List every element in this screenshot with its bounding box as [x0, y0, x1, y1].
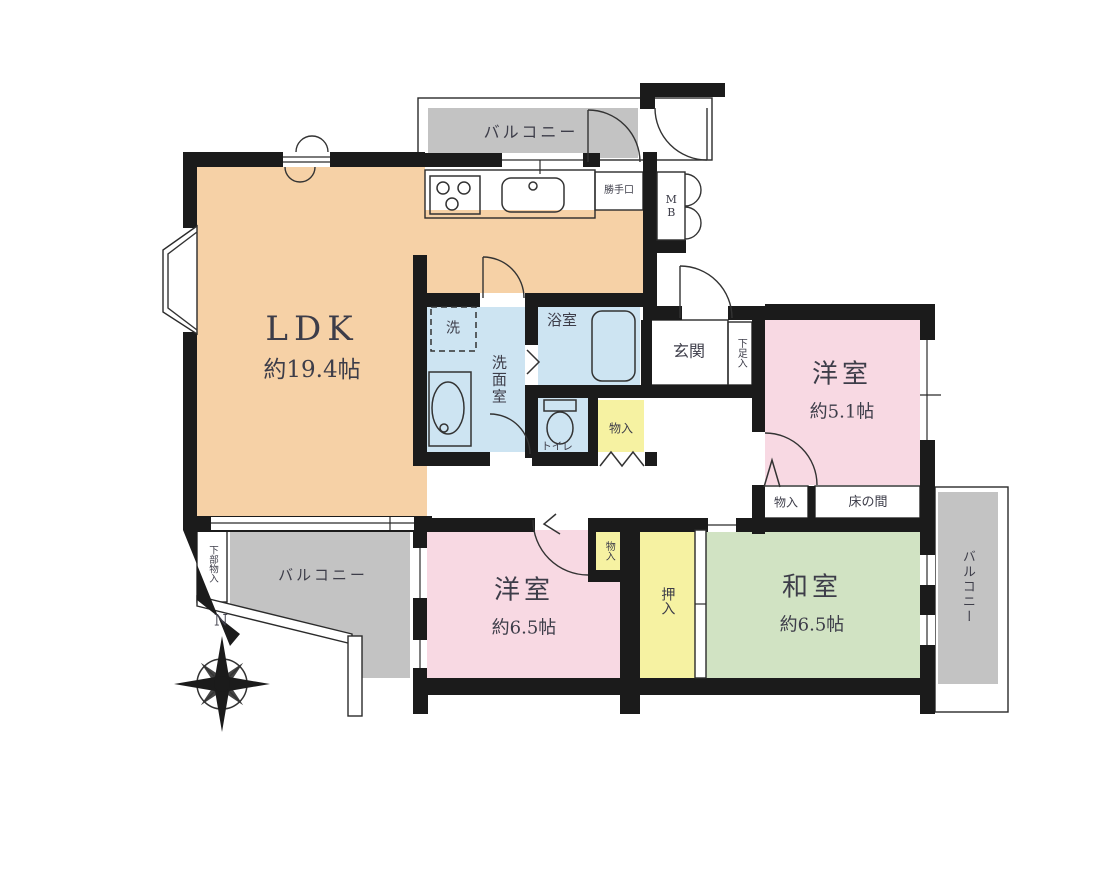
- stove-burner: [446, 198, 458, 210]
- kitchen-faucet: [529, 182, 537, 190]
- balcony-bottom-label: バルコニー: [278, 568, 368, 584]
- meter-box-label: MB: [665, 193, 677, 219]
- compass-rose: [174, 636, 270, 732]
- western2-size: 約6.5帖: [492, 620, 557, 639]
- stove-burner: [437, 182, 449, 194]
- stove-burner: [458, 182, 470, 194]
- japanese-label: 和室: [782, 574, 842, 601]
- ldk-size: 約19.4帖: [263, 358, 360, 382]
- storage-folding-door: [600, 452, 644, 466]
- shoe-storage-label: 下足入: [735, 338, 746, 368]
- compass-north-label: N: [214, 613, 228, 630]
- entrance-door: [680, 266, 732, 318]
- closet-label: 押入: [660, 587, 675, 615]
- laundry-label: 洗: [446, 322, 460, 337]
- floor-plan: LDK 約19.4帖 バルコニー 勝手口 MB 洗 洗面室 浴室 トイレ 物入 …: [0, 0, 1100, 872]
- balcony-bottom-railing-end: [348, 636, 362, 716]
- japanese-size: 約6.5帖: [780, 617, 845, 636]
- japanese-room: [706, 530, 920, 678]
- meter-box-door: [685, 174, 701, 206]
- stove: [430, 176, 480, 214]
- ldk-label: LDK: [265, 312, 358, 348]
- tokonoma-label: 床の間: [848, 496, 887, 510]
- storage-hall-label: 物入: [609, 423, 633, 436]
- washroom-room: [427, 307, 525, 452]
- kitchen-sink: [502, 178, 564, 212]
- balcony-bottom-area: [230, 530, 410, 678]
- storage-west1-label: 物入: [774, 497, 798, 510]
- bathroom-label: 浴室: [547, 313, 577, 329]
- toilet-label: トイレ: [541, 441, 573, 452]
- western1-size: 約5.1帖: [810, 404, 875, 423]
- washroom-label: 洗面室: [490, 355, 506, 406]
- bath-folding-door: [527, 350, 539, 374]
- meter-box-door: [685, 207, 701, 239]
- western1-label: 洋室: [812, 361, 872, 388]
- balcony-top-label: バルコニー: [484, 125, 579, 142]
- storage-west2-label: 物入: [603, 541, 614, 561]
- lower-storage-label: 下部物入: [207, 545, 217, 583]
- back-door-label: 勝手口: [604, 186, 634, 197]
- western2-label: 洋室: [494, 577, 554, 604]
- balcony-right-label: バルコニー: [960, 550, 974, 625]
- entrance-label: 玄関: [673, 344, 705, 361]
